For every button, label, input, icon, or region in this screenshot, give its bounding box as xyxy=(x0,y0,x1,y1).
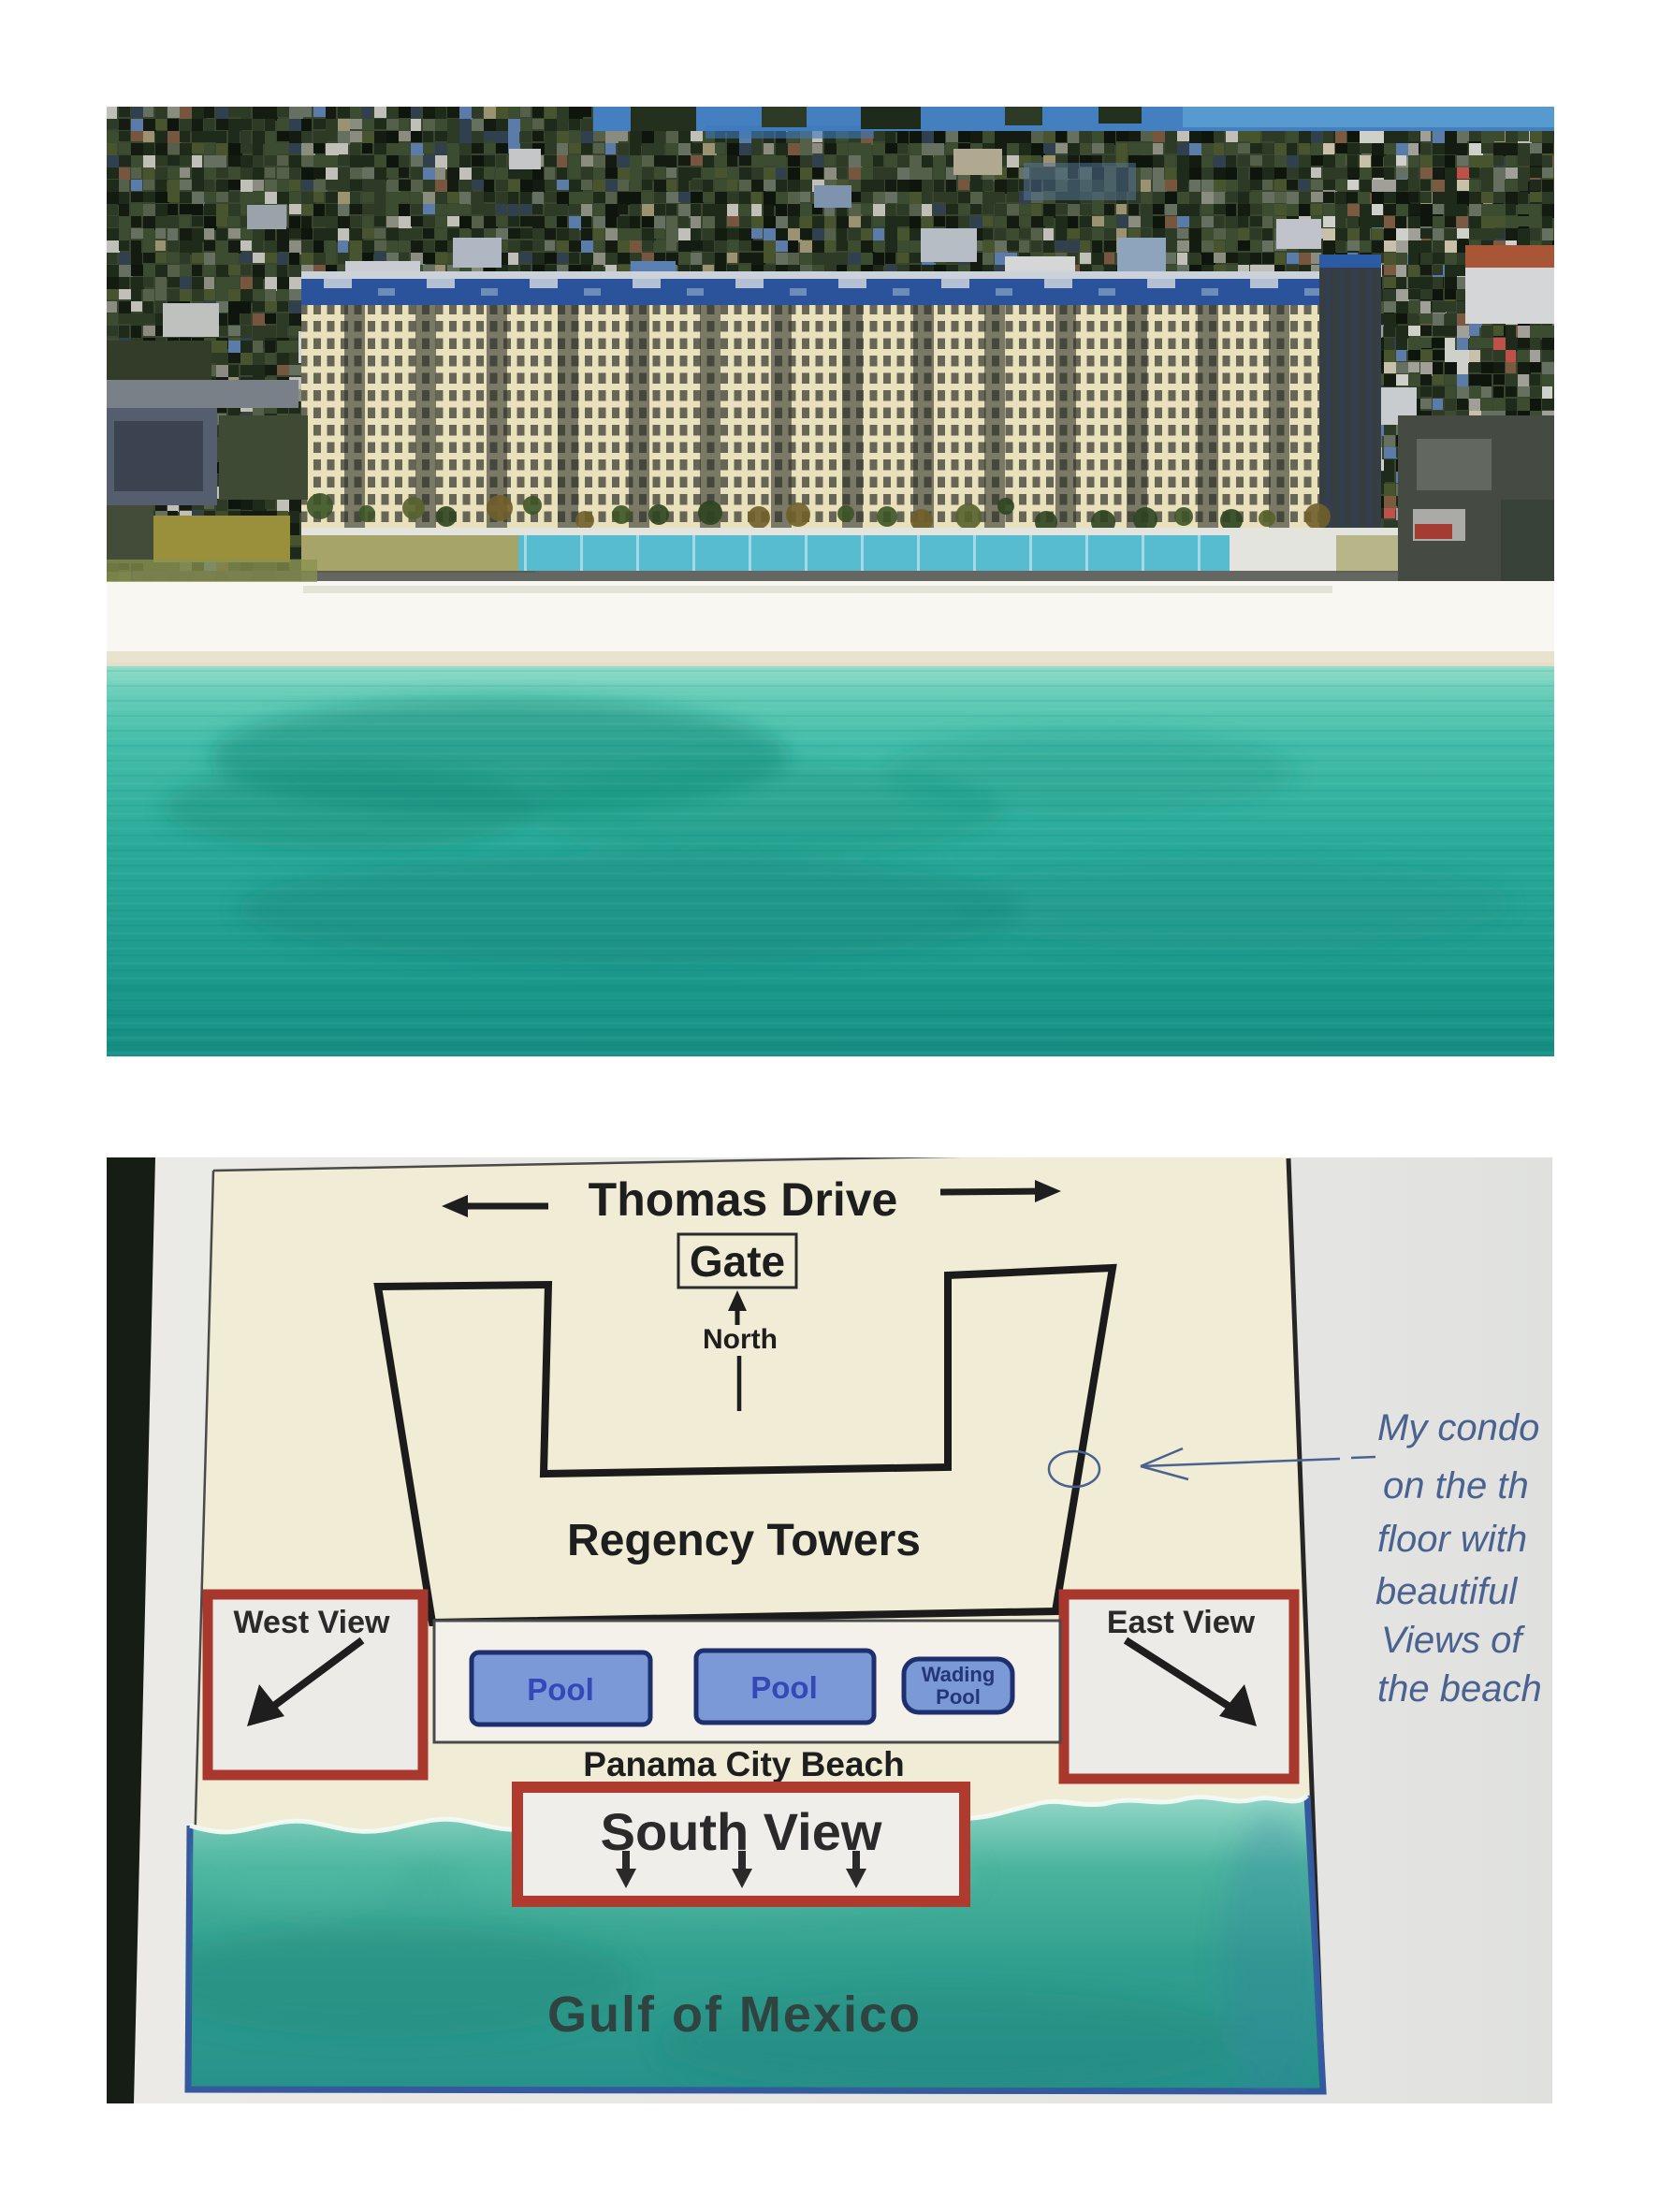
svg-text:My condo: My condo xyxy=(1377,1407,1539,1448)
svg-text:Pool: Pool xyxy=(527,1672,594,1707)
svg-text:Gate: Gate xyxy=(690,1237,785,1286)
svg-text:Pool: Pool xyxy=(750,1670,818,1705)
svg-text:Thomas Drive: Thomas Drive xyxy=(589,1173,898,1226)
svg-text:on the th: on the th xyxy=(1383,1465,1529,1506)
svg-text:floor with: floor with xyxy=(1377,1519,1527,1560)
svg-text:Gulf of Mexico: Gulf of Mexico xyxy=(547,1986,922,2043)
svg-text:West View: West View xyxy=(234,1605,390,1640)
svg-text:the beach: the beach xyxy=(1377,1668,1542,1710)
svg-text:Wading: Wading xyxy=(922,1663,996,1686)
svg-text:North: North xyxy=(703,1324,778,1355)
svg-text:Pool: Pool xyxy=(936,1685,981,1709)
svg-text:Regency Towers: Regency Towers xyxy=(567,1516,921,1565)
svg-text:beautiful: beautiful xyxy=(1375,1571,1518,1612)
svg-text:East View: East View xyxy=(1107,1605,1256,1640)
svg-text:Panama City Beach: Panama City Beach xyxy=(583,1745,904,1783)
svg-text:Views of: Views of xyxy=(1381,1620,1525,1661)
